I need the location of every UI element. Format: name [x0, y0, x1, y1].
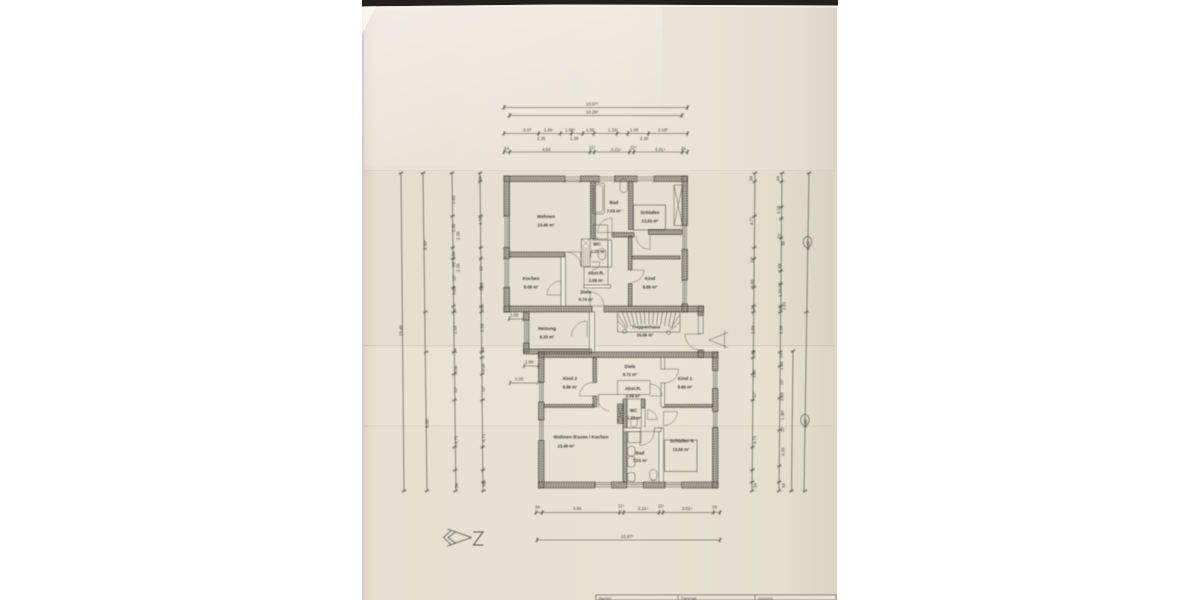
svg-text:34: 34 [752, 483, 757, 488]
svg-text:15.06 m²: 15.06 m² [637, 333, 654, 338]
svg-text:1.00: 1.00 [586, 128, 595, 133]
svg-text:24: 24 [452, 308, 457, 313]
svg-text:24: 24 [751, 350, 756, 355]
svg-text:34: 34 [481, 482, 486, 487]
svg-text:30: 30 [781, 241, 786, 246]
svg-text:11⁵: 11⁵ [658, 504, 664, 509]
svg-text:11⁵: 11⁵ [452, 275, 457, 281]
svg-text:34: 34 [776, 176, 781, 181]
svg-text:4.71: 4.71 [481, 433, 486, 442]
svg-text:8.86 m²: 8.86 m² [563, 385, 578, 390]
svg-text:2.10⁵: 2.10⁵ [658, 128, 668, 133]
svg-text:8.40⁵: 8.40⁵ [803, 418, 808, 428]
svg-text:8.86 m²: 8.86 m² [678, 385, 693, 390]
svg-text:2.08 m²: 2.08 m² [626, 394, 641, 399]
svg-text:4.71: 4.71 [752, 435, 757, 444]
svg-text:2.26: 2.26 [640, 136, 649, 141]
svg-text:2.59: 2.59 [751, 325, 756, 334]
svg-text:1.00: 1.00 [525, 360, 534, 365]
svg-text:19.40: 19.40 [399, 325, 404, 336]
svg-text:Kind: Kind [645, 276, 655, 281]
svg-text:34: 34 [681, 146, 686, 151]
svg-text:1.23 m²: 1.23 m² [627, 416, 642, 421]
svg-text:9.74 m²: 9.74 m² [579, 297, 594, 302]
svg-text:8.86 m²: 8.86 m² [643, 285, 658, 290]
svg-text:10.29⁵: 10.29⁵ [586, 110, 599, 115]
svg-text:23.46 m²: 23.46 m² [558, 444, 575, 449]
svg-text:34: 34 [781, 483, 786, 488]
svg-text:1.69: 1.69 [777, 263, 782, 272]
svg-text:Bauherr: Bauherr [599, 597, 612, 600]
svg-text:1.08⁵: 1.08⁵ [565, 128, 575, 133]
svg-text:2.21⁴: 2.21⁴ [638, 506, 648, 511]
svg-text:2.59: 2.59 [453, 325, 458, 334]
svg-text:Abst.R.: Abst.R. [625, 386, 641, 391]
svg-text:11⁵: 11⁵ [752, 392, 757, 398]
svg-text:2.00: 2.00 [515, 377, 524, 382]
svg-text:1.34: 1.34 [778, 288, 783, 297]
svg-text:1.89: 1.89 [780, 392, 785, 401]
svg-text:Treppenhaus: Treppenhaus [632, 325, 661, 330]
svg-text:11⁵: 11⁵ [453, 387, 458, 393]
svg-text:10.97⁵: 10.97⁵ [621, 534, 634, 539]
svg-text:3.00: 3.00 [452, 286, 457, 295]
svg-text:3.00: 3.00 [480, 363, 485, 372]
svg-text:Gezeichn.: Gezeichn. [758, 597, 774, 600]
svg-text:Schlafen ↯: Schlafen ↯ [670, 439, 694, 444]
svg-text:8.40⁵: 8.40⁵ [806, 240, 811, 250]
svg-text:34: 34 [535, 505, 540, 510]
svg-text:1.33⁵: 1.33⁵ [608, 128, 618, 133]
svg-text:34: 34 [749, 176, 754, 181]
svg-text:11⁵: 11⁵ [618, 504, 624, 509]
svg-text:34: 34 [712, 505, 717, 510]
svg-text:24: 24 [779, 353, 784, 358]
svg-text:11⁵: 11⁵ [779, 379, 784, 385]
svg-text:Diele: Diele [625, 364, 636, 369]
svg-text:4.71: 4.71 [478, 216, 483, 225]
svg-text:11⁵: 11⁵ [780, 426, 785, 432]
svg-text:1.30⁵: 1.30⁵ [780, 410, 785, 420]
svg-text:Heizung: Heizung [538, 326, 556, 331]
svg-text:2.26: 2.26 [456, 263, 461, 272]
svg-text:11⁵: 11⁵ [481, 386, 486, 392]
svg-text:3.25: 3.25 [780, 447, 785, 456]
svg-text:Wohnen: Wohnen [537, 214, 555, 219]
svg-text:2.08 m²: 2.08 m² [589, 278, 604, 283]
svg-text:24: 24 [778, 306, 783, 311]
svg-text:3.00: 3.00 [479, 282, 484, 291]
svg-text:WC: WC [630, 408, 638, 413]
svg-text:11⁵: 11⁵ [750, 257, 755, 263]
svg-text:2.59: 2.59 [778, 325, 783, 334]
svg-text:2.26: 2.26 [456, 231, 461, 240]
svg-text:23.46 m²: 23.46 m² [538, 223, 555, 228]
svg-text:8.50⁵: 8.50⁵ [423, 240, 428, 250]
svg-text:11⁵: 11⁵ [479, 265, 484, 271]
svg-text:2.59: 2.59 [480, 323, 485, 332]
svg-text:11⁵: 11⁵ [777, 282, 782, 288]
svg-text:Schlafen: Schlafen [640, 210, 659, 215]
svg-text:11⁵: 11⁵ [777, 233, 782, 239]
svg-text:24: 24 [480, 347, 485, 352]
svg-text:2.00: 2.00 [451, 223, 456, 232]
svg-text:1.38: 1.38 [570, 136, 579, 141]
svg-text:11⁵: 11⁵ [630, 145, 636, 150]
svg-text:1.24: 1.24 [779, 361, 784, 370]
svg-text:Kochen: Kochen [523, 276, 540, 281]
svg-text:7.03 m²: 7.03 m² [633, 458, 648, 463]
svg-text:WC: WC [593, 242, 601, 247]
svg-text:2.83: 2.83 [451, 195, 456, 204]
svg-text:Kind 2: Kind 2 [563, 376, 577, 381]
svg-text:2.21⁴: 2.21⁴ [611, 147, 621, 152]
svg-text:34: 34 [478, 176, 483, 181]
svg-text:4.71: 4.71 [454, 435, 459, 444]
svg-text:1.23 m²: 1.23 m² [591, 249, 606, 254]
svg-text:7.03 m²: 7.03 m² [607, 209, 622, 214]
svg-text:4.84: 4.84 [542, 147, 551, 152]
svg-text:4.71: 4.71 [749, 216, 754, 225]
svg-text:1.00: 1.00 [544, 128, 553, 133]
svg-text:8.08 m²: 8.08 m² [524, 285, 539, 290]
svg-text:24: 24 [479, 306, 484, 311]
svg-text:Diele: Diele [581, 290, 592, 295]
svg-text:Abst.R.: Abst.R. [588, 271, 604, 276]
svg-text:13.93 m²: 13.93 m² [642, 219, 659, 224]
svg-text:3.01⁴: 3.01⁴ [682, 506, 692, 511]
svg-text:1.00: 1.00 [510, 313, 519, 318]
svg-text:3.25: 3.25 [776, 205, 781, 214]
svg-text:Planinhalt: Planinhalt [681, 597, 696, 600]
svg-text:Wohnen /Essen / Kochen: Wohnen /Essen / Kochen [554, 435, 609, 440]
svg-text:34: 34 [504, 146, 509, 151]
svg-text:10.97⁵: 10.97⁵ [586, 102, 599, 107]
svg-text:9.72 m²: 9.72 m² [623, 372, 638, 377]
svg-text:1.00: 1.00 [451, 251, 456, 260]
svg-text:4.84: 4.84 [573, 506, 582, 511]
svg-text:Bad: Bad [610, 200, 619, 205]
svg-text:3.00: 3.00 [750, 279, 755, 288]
svg-text:3.00: 3.00 [453, 365, 458, 374]
svg-text:24: 24 [750, 305, 755, 310]
svg-text:3.00: 3.00 [751, 369, 756, 378]
svg-text:1.00: 1.00 [630, 128, 639, 133]
svg-text:8.33 m²: 8.33 m² [540, 335, 555, 340]
svg-text:8.00⁵: 8.00⁵ [425, 418, 430, 428]
svg-text:Bad: Bad [636, 451, 645, 456]
svg-text:13.56 m²: 13.56 m² [673, 447, 690, 452]
svg-text:3.01⁴: 3.01⁴ [655, 147, 665, 152]
svg-text:34: 34 [454, 483, 459, 488]
svg-text:Kind 1: Kind 1 [678, 376, 692, 381]
svg-text:11⁵: 11⁵ [589, 145, 595, 150]
svg-text:3.47: 3.47 [523, 128, 532, 133]
svg-text:24: 24 [453, 348, 458, 353]
svg-text:2.26: 2.26 [537, 136, 546, 141]
